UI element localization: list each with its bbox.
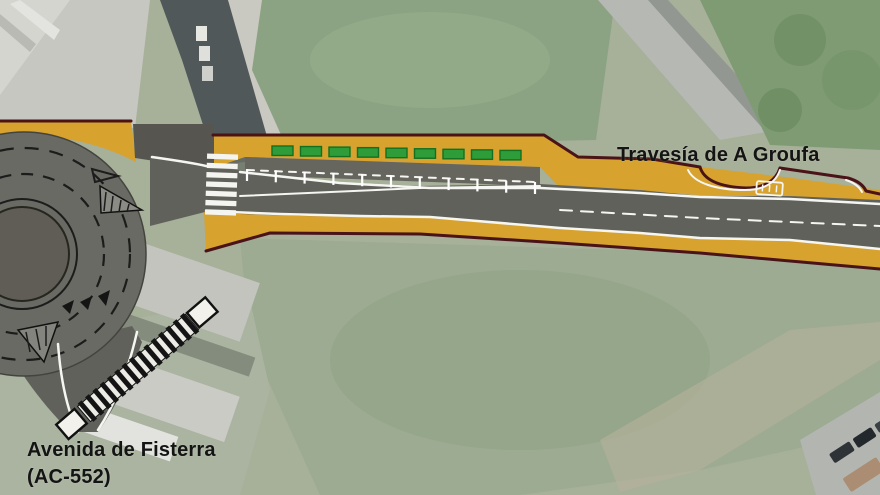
planter (272, 146, 293, 156)
label-travesia: Travesía de A Groufa (617, 142, 820, 169)
tree-blob (822, 50, 880, 110)
planter (443, 149, 464, 159)
planter (301, 147, 322, 157)
grass-patch (310, 12, 550, 108)
planter (358, 148, 379, 158)
planter (386, 148, 407, 158)
car (199, 46, 210, 61)
crosswalk-stripe (205, 209, 236, 215)
map-canvas (0, 0, 880, 495)
car (196, 26, 207, 41)
tree-blob (758, 88, 802, 132)
plan-map: Travesía de A Groufa Avenida de Fisterra… (0, 0, 880, 495)
crosswalk-stripe (207, 163, 238, 169)
planter (415, 149, 436, 159)
crosswalk-stripe (205, 200, 236, 206)
crosswalk-stripe (206, 172, 237, 178)
car (202, 66, 213, 81)
label-avenida-line2: (AC-552) (27, 464, 111, 491)
tree-blob (774, 14, 826, 66)
crosswalk-stripe (206, 181, 237, 187)
planter (329, 147, 350, 157)
crosswalk-stripe (206, 191, 237, 197)
crosswalk-stripe (207, 153, 238, 159)
planter (472, 150, 493, 160)
label-avenida-line1: Avenida de Fisterra (27, 437, 216, 464)
planter (500, 150, 521, 160)
